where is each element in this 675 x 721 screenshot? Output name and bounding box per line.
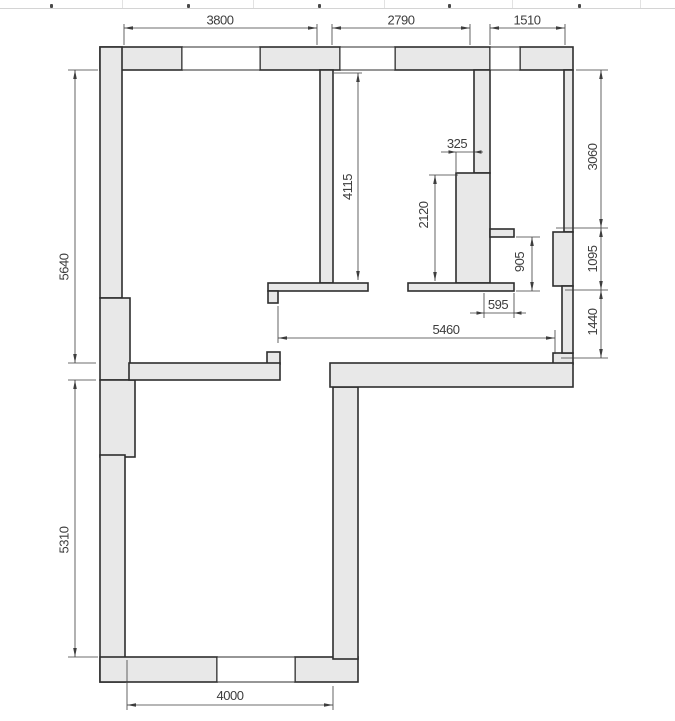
wall-segment: [490, 229, 514, 237]
wall-segment: [295, 657, 358, 682]
wall-segment: [564, 70, 573, 232]
wall-segment: [268, 283, 368, 291]
dim-label-5640: 5640: [57, 253, 72, 280]
dim-label-1095: 1095: [585, 245, 600, 272]
wall-segments: [100, 47, 573, 682]
wall-segment: [553, 232, 573, 286]
wall-segment: [100, 47, 122, 298]
wall-segment: [456, 173, 490, 283]
dim-label-1440: 1440: [585, 308, 600, 335]
wall-segment: [395, 47, 490, 70]
wall-segment: [100, 298, 130, 380]
dim-label-325: 325: [447, 136, 467, 151]
wall-segment: [129, 363, 280, 380]
window-opening: [217, 657, 295, 682]
wall-segment: [520, 47, 573, 70]
dim-label-4000: 4000: [217, 688, 244, 703]
window-opening: [340, 47, 395, 70]
wall-segment: [408, 283, 514, 291]
wall-segment: [320, 70, 333, 283]
dim-label-4115: 4115: [340, 174, 355, 200]
wall-segment: [562, 286, 573, 353]
wall-segment: [100, 455, 125, 682]
dim-label-1510: 1510: [514, 13, 541, 28]
dim-label-595: 595: [488, 297, 508, 312]
dim-label-905: 905: [512, 252, 527, 272]
wall-segment: [268, 291, 278, 303]
dim-label-5310: 5310: [57, 526, 72, 553]
window-opening: [182, 47, 260, 70]
dim-label-2790: 2790: [388, 13, 415, 28]
floorplan-canvas[interactable]: 3800 2790 1510 5640 5310 3060 1095 1440 …: [0, 0, 675, 721]
window-opening: [490, 47, 520, 70]
floorplan-viewport[interactable]: 3800 2790 1510 5640 5310 3060 1095 1440 …: [0, 0, 675, 721]
dim-label-3060: 3060: [585, 143, 600, 170]
wall-segment: [333, 387, 358, 659]
dim-label-5460: 5460: [433, 322, 460, 337]
dim-label-3800: 3800: [207, 13, 234, 28]
wall-segment: [474, 70, 490, 173]
dim-label-2120: 2120: [416, 201, 431, 228]
wall-segment: [330, 363, 573, 387]
wall-segment: [100, 380, 135, 457]
wall-segment: [100, 657, 217, 682]
wall-segment: [260, 47, 340, 70]
